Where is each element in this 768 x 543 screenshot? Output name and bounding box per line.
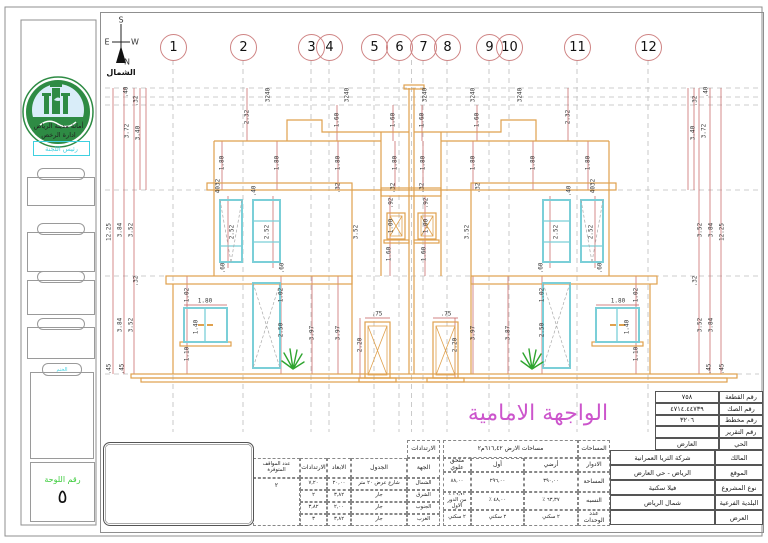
dimension-label: 1.60 — [386, 247, 393, 261]
dimension-label: 1.60 — [419, 113, 426, 127]
table-cell: ٢ — [300, 490, 327, 502]
dimension-label: 1.80 — [530, 156, 537, 170]
parking-value: ٢ — [253, 478, 300, 526]
dimension-label: 3240 — [265, 88, 272, 102]
dimension-label: 1.10 — [184, 347, 191, 361]
row-label: النسبه — [578, 492, 610, 510]
compass-e: E — [104, 38, 109, 47]
row-label: رقم مخطط — [719, 415, 763, 427]
row-label: العرض — [715, 510, 763, 525]
grid-bubble: 8 — [434, 34, 461, 61]
dimension-label: .45 — [119, 364, 126, 375]
dimension-label: 1.80 — [274, 156, 281, 170]
sheet-number-label: رقم اللوحة — [31, 475, 94, 484]
table-cell: ٧,٢٠ — [300, 478, 327, 490]
row-value — [655, 426, 719, 438]
dimension-label: 1.00 — [423, 219, 430, 233]
dimension-label: 3.84 — [708, 318, 715, 332]
sheet-number-value: ٥ — [31, 486, 94, 508]
plant-right — [521, 349, 543, 369]
row-label: رقم التقرير — [719, 426, 763, 438]
table-cell: جار — [351, 514, 407, 526]
dimension-label: 1.80 — [470, 156, 477, 170]
table-cell: ٣,٨٢ — [327, 490, 351, 502]
floor-header: أول — [471, 458, 524, 472]
table-row: المالكشركة الثريا العمرانية — [610, 450, 763, 465]
dimension-label: 3.87 — [505, 326, 512, 340]
dimension-label: 3.52 — [697, 223, 704, 237]
column-header: الابعاد — [327, 458, 351, 478]
dimension-label: 3.84 — [708, 223, 715, 237]
row-value: ٤٧١٤.٤٤٧٣٩ — [655, 403, 719, 415]
table-cell: ٢ سكني — [471, 510, 524, 526]
row-value: الرياض - حي العارض — [610, 465, 715, 480]
dimension-label: 1.10 — [633, 347, 640, 361]
dimension-label: .45 — [706, 364, 713, 375]
dimension-label: 3.40 — [690, 126, 697, 140]
dimension-label: 3.52 — [128, 318, 135, 332]
plant-left — [282, 349, 304, 369]
dimension-label: 3240 — [422, 88, 429, 102]
level-dashed-lines — [105, 60, 759, 432]
areas-corner: المساحات — [578, 440, 610, 458]
row-label: الموقع — [715, 465, 763, 480]
row-value: ٧٥٨ — [655, 391, 719, 403]
row-value: العارض — [655, 438, 719, 450]
window-handle — [207, 324, 213, 326]
dimension-label: 1.02 — [278, 288, 285, 302]
table-cell: الجنوب — [407, 502, 440, 514]
dimension-label: 1.80 — [335, 156, 342, 170]
dimension-label: 4032 — [215, 179, 222, 193]
signature-box — [27, 232, 95, 272]
dimension-label: 1.80 — [198, 298, 212, 305]
facade-title: الواجهة الامامية — [443, 401, 633, 426]
blueprint-page: S E W N الشمال 123456789101112 .40.323.7… — [0, 0, 768, 543]
north-label: الشمال — [101, 68, 141, 77]
table-cell: جار — [351, 502, 407, 514]
grid-bubble: 10 — [496, 34, 523, 61]
dimension-label: 2.52 — [264, 225, 271, 239]
table-cell: ٣,٨٢ — [300, 502, 327, 514]
dimension-label: .60 — [538, 263, 545, 274]
dimension-label: 2.50 — [278, 323, 285, 337]
row-label: الحي — [719, 438, 763, 450]
row-label: رقم القطعة — [719, 391, 763, 403]
floors-label: الادوار — [578, 458, 610, 472]
row-label: عدد الوحدات — [578, 510, 610, 526]
compass-w: W — [131, 38, 139, 47]
dimension-label: 1.80 — [219, 156, 226, 170]
table-cell: الشرق — [407, 490, 440, 502]
stamp-box — [30, 372, 94, 459]
small-window-sill-left — [384, 240, 409, 243]
signature-box — [27, 280, 95, 315]
row-value: شمال الرياض — [610, 495, 715, 510]
dimension-label: 1.02 — [184, 288, 191, 302]
row-value: فيلا سكنية — [610, 480, 715, 495]
table-cell: شارع عرض ٢٠ متر — [351, 478, 407, 490]
table-row: رقم الصك٤٧١٤.٤٤٧٣٩ — [655, 403, 763, 415]
dimension-label: .32 — [475, 183, 482, 194]
table-row: الموقعالرياض - حي العارض — [610, 465, 763, 480]
table-cell: ٢٩٦,٠٠ — [471, 472, 524, 492]
dimension-label: .32 — [335, 183, 342, 194]
table-cell: ٢ سكني — [443, 510, 471, 526]
row-value: شركة الثريا العمرانية — [610, 450, 715, 465]
dimension-label: .60 — [220, 263, 227, 274]
window-handle — [610, 324, 616, 326]
dimension-label: .45 — [106, 364, 113, 375]
dimension-label: .60 — [597, 263, 604, 274]
plot-info-table: رقم القطعة٧٥٨رقم الصك٤٧١٤.٤٤٧٣٩رقم مخطط٣… — [655, 391, 763, 450]
dimension-label: 2.50 — [539, 323, 546, 337]
ground-slab-edge — [141, 378, 727, 382]
dimension-label: .92 — [388, 198, 395, 209]
table-cell: الشمال — [407, 478, 440, 490]
dimension-label: 1.60 — [390, 113, 397, 127]
grid-bubble: 2 — [230, 34, 257, 61]
dimension-label: 1.60 — [334, 113, 341, 127]
dimension-label: 2.20 — [452, 338, 459, 352]
dimension-label: .40 — [123, 87, 130, 98]
table-cell: ٨٨,٠٠ — [443, 472, 471, 492]
table-cell: ٢٩,٧٣ ٪ من الدور الاول — [443, 492, 471, 510]
dimension-label: .32 — [390, 183, 397, 194]
table-cell: ٤٨,٠٠ ٪ — [471, 492, 524, 510]
dimension-label: 3.97 — [470, 326, 477, 340]
setbacks-table: الارتداداتالجهةالجدولالابعادالارتداداتعد… — [253, 440, 440, 526]
dimension-label: 3.40 — [135, 126, 142, 140]
spacer — [253, 440, 407, 458]
dimension-label: 2.52 — [553, 225, 560, 239]
row-label: نوع المشروع — [715, 480, 763, 495]
dimension-label: .75 — [441, 311, 452, 318]
dimension-label: 1.40 — [624, 320, 631, 334]
dimension-label: .40 — [566, 186, 573, 197]
dimension-label: 3240 — [517, 88, 524, 102]
column-header: الجدول — [351, 458, 407, 478]
floor-header: أرضي — [524, 458, 578, 472]
cornice-band-left — [207, 183, 352, 190]
signature-box — [27, 327, 95, 359]
notes-box — [103, 442, 254, 526]
dimension-label: 1.80 — [392, 156, 399, 170]
dimension-label: 2.32 — [565, 110, 572, 124]
dimension-label: .32 — [419, 183, 426, 194]
table-row: البلدية الفرعيةشمال الرياض — [610, 495, 763, 510]
setbacks-title: الارتدادات — [407, 440, 440, 458]
dimension-label: .32 — [133, 96, 140, 107]
dimension-label: .40 — [703, 87, 710, 98]
dimension-label: 1.60 — [421, 247, 428, 261]
dimension-label: .60 — [279, 263, 286, 274]
org-line1: أمانة مدينة الرياض — [21, 122, 96, 131]
grid-bubble: 1 — [160, 34, 187, 61]
table-cell: ٣٩٠,٠٠ — [524, 472, 578, 492]
committee-chairman-box: رئيس اللجنة — [33, 141, 90, 156]
dimension-label: 1.02 — [633, 288, 640, 302]
dimension-label: 3240 — [344, 88, 351, 102]
dimension-label: 1.80 — [611, 298, 625, 305]
dimension-label: 3.52 — [464, 225, 471, 239]
dimension-label: .75 — [372, 311, 383, 318]
row-label: رقم الصك — [719, 403, 763, 415]
table-cell: الغرب — [407, 514, 440, 526]
floor-header: ملحق علوي — [443, 458, 471, 472]
org-text: أمانة مدينة الرياض ادارة الرخص — [21, 122, 96, 140]
grid-bubble: 4 — [316, 34, 343, 61]
table-cell: ٢٠,٠٠ — [327, 478, 351, 490]
table-row: العرض — [610, 510, 763, 525]
grid-bubble: 6 — [386, 34, 413, 61]
dimension-label: 3240 — [470, 88, 477, 102]
door-step-right — [427, 378, 464, 382]
row-label: البلدية الفرعية — [715, 495, 763, 510]
column-header: الجهة — [407, 458, 440, 478]
dimension-label: 4032 — [590, 179, 597, 193]
grid-bubble: 7 — [410, 34, 437, 61]
dimension-label: 3.84 — [117, 318, 124, 332]
table-cell: ٢ سكني — [524, 510, 578, 526]
dimension-label: 3.52 — [697, 318, 704, 332]
dimension-label: 2.52 — [588, 225, 595, 239]
dimension-label: 3.72 — [701, 124, 708, 138]
dimension-label: 3.52 — [128, 223, 135, 237]
dimension-label: 2.32 — [244, 110, 251, 124]
compass-s: S — [118, 16, 123, 25]
grid-bubble: 5 — [361, 34, 388, 61]
dimension-label: 2.20 — [357, 338, 364, 352]
row-label: المالك — [715, 450, 763, 465]
parking-header: عدد المواقف المتوفرة — [253, 458, 300, 478]
dimension-label: 1.02 — [539, 288, 546, 302]
dimension-label: 3.52 — [353, 225, 360, 239]
row-value: ٣٢٠٦ — [655, 415, 719, 427]
dimension-label: 3.84 — [117, 223, 124, 237]
table-row: رقم القطعة٧٥٨ — [655, 391, 763, 403]
table-cell: جار — [351, 490, 407, 502]
dimension-label: .40 — [251, 186, 258, 197]
ground-slab — [131, 374, 737, 378]
small-window-sill-right — [414, 240, 439, 243]
table-row: الحيالعارض — [655, 438, 763, 450]
dimension-label: 3.72 — [124, 124, 131, 138]
dimension-label: 1.00 — [388, 219, 395, 233]
column-header: الارتدادات — [300, 458, 327, 478]
project-info-table: المالكشركة الثريا العمرانيةالموقعالرياض … — [610, 450, 763, 525]
areas-title: مساحات الارض ٦١٦,٤٢م٢ — [443, 440, 578, 458]
row-value — [610, 510, 715, 525]
compass-n: N — [124, 58, 130, 67]
dimension-label: 1.80 — [585, 156, 592, 170]
dimension-label: 12.25 — [719, 223, 726, 241]
table-cell: ٢,٠٠ — [327, 502, 351, 514]
dimension-label: 2.52 — [229, 225, 236, 239]
table-row: نوع المشروعفيلا سكنية — [610, 480, 763, 495]
dimension-label: 1.60 — [474, 113, 481, 127]
dimension-label: 3.97 — [335, 326, 342, 340]
dimension-label: .92 — [423, 198, 430, 209]
door-step-left — [359, 378, 396, 382]
dimension-label: .32 — [133, 276, 140, 287]
areas-table: المساحاتمساحات الارض ٦١٦,٤٢م٢الادوارأرضي… — [443, 440, 610, 526]
row-label: المساحة — [578, 472, 610, 492]
table-row: رقم التقرير — [655, 426, 763, 438]
grid-bubble: 11 — [564, 34, 591, 61]
dimension-label: .32 — [692, 96, 699, 107]
dimension-label: 3.97 — [309, 326, 316, 340]
sheet-number-box: رقم اللوحة ٥ — [30, 462, 95, 522]
org-line2: ادارة الرخص — [21, 131, 96, 140]
dimension-label: .32 — [692, 276, 699, 287]
signature-box — [27, 177, 95, 206]
table-cell: ٣,٨٢ — [327, 514, 351, 526]
dimension-label: 1.80 — [420, 156, 427, 170]
grid-bubble: 12 — [635, 34, 662, 61]
dimension-label: 1.40 — [193, 320, 200, 334]
table-cell: ٦٣,٣٧ ٪ — [524, 492, 578, 510]
table-cell: ٣ — [300, 514, 327, 526]
table-row: رقم مخطط٣٢٠٦ — [655, 415, 763, 427]
dimension-label: 12.25 — [106, 223, 113, 241]
dimension-label: .45 — [719, 364, 726, 375]
